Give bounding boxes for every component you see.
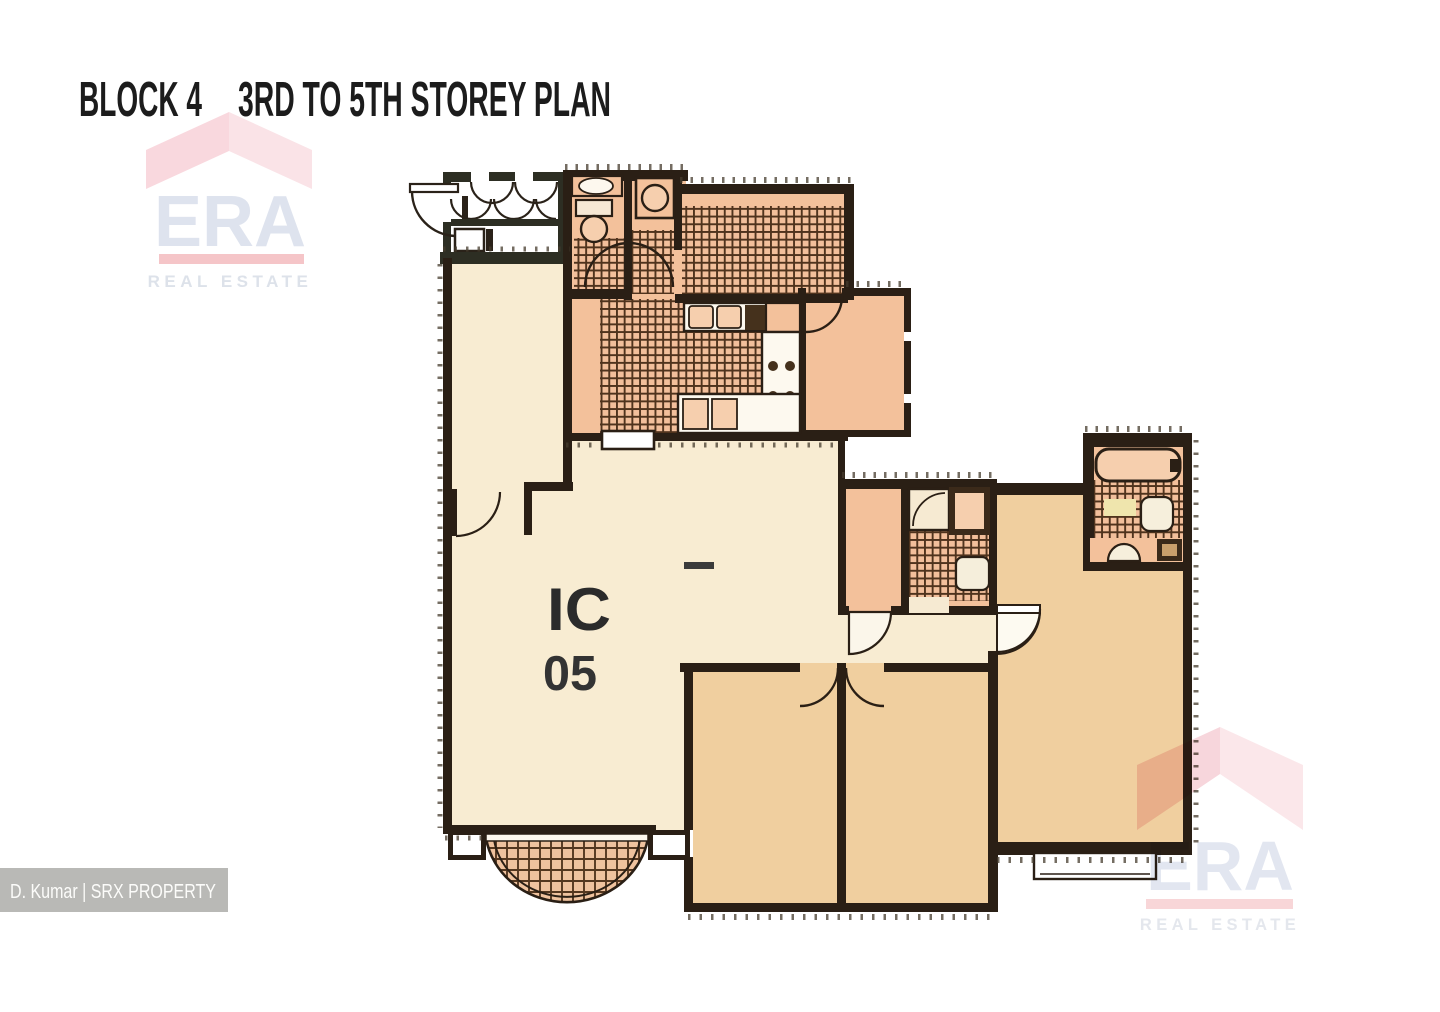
svg-text:D. Kumar | SRX PROPERTY: D. Kumar | SRX PROPERTY	[10, 881, 216, 903]
svg-text:IC: IC	[547, 576, 611, 643]
svg-text:REAL ESTATE: REAL ESTATE	[1140, 916, 1300, 934]
svg-text:ERA: ERA	[154, 182, 306, 262]
svg-text:ERA: ERA	[1146, 827, 1294, 905]
svg-text:BLOCK 4: BLOCK 4	[79, 73, 202, 127]
svg-text:3RD TO 5TH STOREY PLAN: 3RD TO 5TH STOREY PLAN	[238, 73, 611, 127]
svg-text:REAL ESTATE: REAL ESTATE	[148, 272, 313, 291]
svg-text:05: 05	[543, 647, 597, 701]
